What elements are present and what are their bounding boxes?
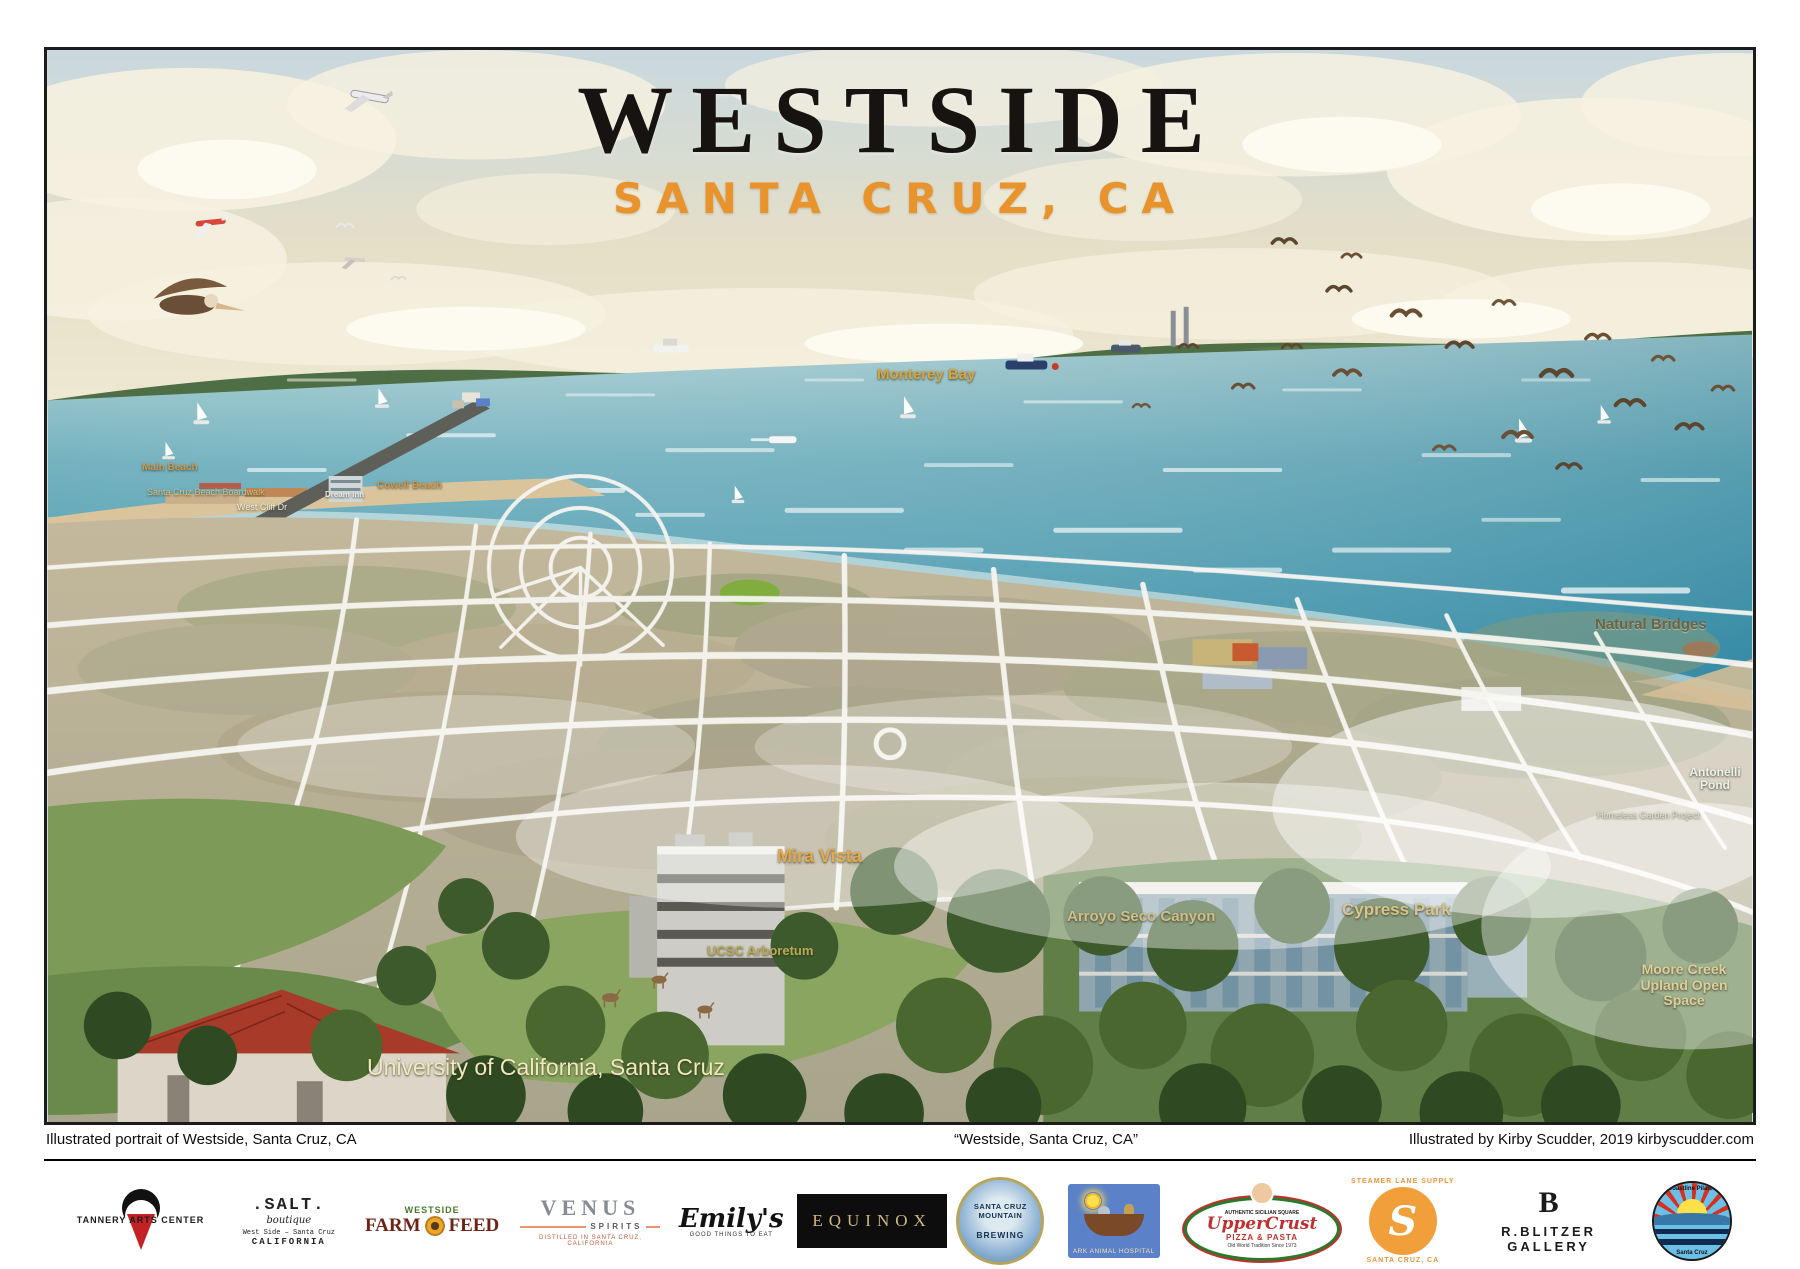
logo-rblitzer-gallery: B R.BLITZER GALLERY [1461,1188,1636,1254]
uppercrust-oval: AUTHENTIC SICILIAN SQUARE UpperCrust PIZ… [1184,1197,1340,1261]
map-label-boardwalk: Santa Cruz Beach Boardwalk [147,487,265,497]
title-block: WESTSIDE SANTA CRUZ, CA [47,72,1753,223]
steamer-circle-icon: S [1369,1187,1437,1255]
map-frame: WESTSIDE SANTA CRUZ, CA Monterey Bay Mir… [44,47,1756,1125]
map-label-antonelli-pond: Antonelli Pond [1675,766,1755,793]
logo-westside-farm-feed: WESTSIDE FARM FEED [355,1205,510,1237]
venus-rule-right [646,1226,660,1228]
wave-icon [1654,1229,1730,1234]
salt-sub3: CALIFORNIA [252,1237,326,1247]
logo-equinox: EQUINOX [797,1194,947,1248]
caption-bar: Illustrated portrait of Westside, Santa … [44,1131,1756,1153]
pilates-arc-top: Coastline Pilates [1654,1186,1730,1192]
equinox-box: EQUINOX [797,1194,947,1248]
logo-steamer-lane-supply: STEAMER LANE SUPPLY S SANTA CRUZ, CA [1350,1178,1455,1264]
logo-santa-cruz-mountain-brewing: SANTA CRUZ MOUNTAIN BREWING [953,1177,1048,1265]
sunflower-icon [425,1216,445,1236]
map-label-cypress-park: Cypress Park [1342,900,1451,920]
logo-coastline-pilates: Coastline Pilates Santa Cruz [1642,1181,1742,1261]
farmfeed-westside: WESTSIDE [405,1205,460,1215]
caption-left: Illustrated portrait of Westside, Santa … [46,1131,357,1148]
emilys-tagline: GOOD THINGS TO EAT [690,1232,773,1238]
tannery-name: TANNERY ARTS CENTER [58,1215,223,1225]
logo-ark-animal-hospital: ARK ANIMAL HOSPITAL [1054,1184,1174,1258]
scmb-line3: BREWING [976,1230,1024,1240]
steamer-arc-bottom: SANTA CRUZ, CA [1366,1257,1439,1264]
uppercrust-tagline: Old World Tradition Since 1973 [1227,1243,1296,1249]
farmfeed-feed: FEED [449,1215,500,1237]
map-label-dream-inn: Dream Inn [325,490,364,499]
caption-right: Illustrated by Kirby Scudder, 2019 kirby… [1409,1131,1754,1148]
emilys-name: Emily's [679,1204,784,1234]
map-label-west-cliff: West Cliff Dr [237,502,287,512]
ark-name: ARK ANIMAL HOSPITAL [1068,1248,1160,1255]
pilates-arc-bottom: Santa Cruz [1654,1250,1730,1256]
venus-rule-left [520,1226,586,1228]
poster-subtitle: SANTA CRUZ, CA [47,174,1753,223]
brewing-badge-icon: SANTA CRUZ MOUNTAIN BREWING [956,1177,1044,1265]
poster-title: WESTSIDE [47,72,1753,168]
map-label-ucsc-arboretum: UCSC Arboretum [707,943,813,958]
caption-rule [44,1159,1756,1161]
logo-salt-boutique: .SALT. boutique West Side – Santa Cruz C… [229,1196,349,1247]
sponsor-logo-row: TANNERY ARTS CENTER .SALT. boutique West… [58,1178,1742,1264]
hill-icon [1654,1213,1730,1225]
coastline-badge-icon: Coastline Pilates Santa Cruz [1652,1181,1732,1261]
caption-center: “Westside, Santa Cruz, CA” [954,1131,1138,1148]
logo-uppercrust-pizza: AUTHENTIC SICILIAN SQUARE UpperCrust PIZ… [1180,1181,1345,1261]
venus-tagline: DISTILLED IN SANTA CRUZ, CALIFORNIA [515,1235,665,1247]
salt-sub2: West Side – Santa Cruz [243,1229,335,1237]
chef-icon [1250,1181,1274,1205]
salt-sub1: boutique [266,1215,311,1226]
map-label-cowell-beach: Cowell Beach [377,480,442,491]
venus-name: VENUS [541,1195,641,1221]
ark-boat-icon [1084,1214,1144,1236]
map-label-mira-vista: Mira Vista [777,846,862,867]
farmfeed-farm: FARM [365,1215,421,1237]
map-label-homeless-garden: Homeless Garden Project [1597,810,1700,820]
uppercrust-sub: PIZZA & PASTA [1226,1233,1298,1242]
blitzer-name: R.BLITZER GALLERY [1461,1224,1636,1254]
equinox-name: EQUINOX [812,1211,931,1231]
wave-icon [1654,1239,1730,1245]
scmb-line1: SANTA CRUZ [974,1202,1027,1211]
map-label-monterey-bay: Monterey Bay [877,366,975,383]
poster: WESTSIDE SANTA CRUZ, CA Monterey Bay Mir… [0,0,1800,1269]
logo-venus-spirits: VENUS SPIRITS DISTILLED IN SANTA CRUZ, C… [515,1195,665,1247]
venus-spirits: SPIRITS [590,1222,642,1231]
scmb-line2: MOUNTAIN [978,1211,1022,1220]
logo-emilys: Emily's GOOD THINGS TO EAT [671,1204,791,1238]
map-label-university: University of California, Santa Cruz [367,1054,725,1081]
salt-name: .SALT. [252,1196,325,1215]
logo-tannery-arts-center: TANNERY ARTS CENTER [58,1181,223,1261]
map-label-main-beach: Main Beach [142,462,198,473]
blitzer-monogram: B [1539,1188,1559,1218]
uppercrust-name: UpperCrust [1207,1216,1318,1233]
ark-illustration-icon: ARK ANIMAL HOSPITAL [1068,1184,1160,1258]
steamer-arc-top: STEAMER LANE SUPPLY [1351,1178,1455,1185]
map-label-arroyo-seco-canyon: Arroyo Seco Canyon [1067,908,1215,925]
map-label-moore-creek: Moore Creek Upland Open Space [1629,962,1739,1009]
map-label-natural-bridges: Natural Bridges [1595,616,1707,633]
steamer-monogram: S [1388,1198,1417,1245]
